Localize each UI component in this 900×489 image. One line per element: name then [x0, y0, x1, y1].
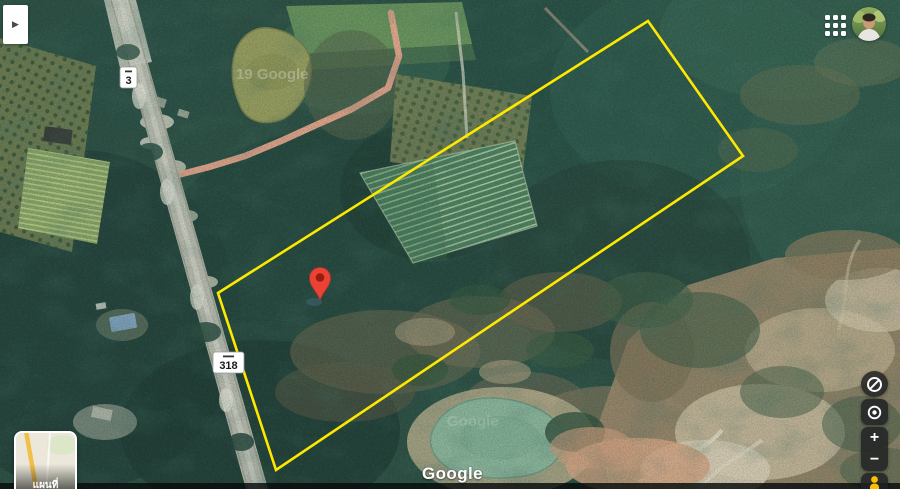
road-shield-3-label: 3 — [125, 75, 131, 87]
zoom-control: + − — [861, 427, 888, 471]
road-shield-318-label: 318 — [219, 360, 237, 372]
zoom-in-button[interactable]: + — [861, 427, 888, 449]
compass-icon — [861, 371, 888, 398]
map-type-toggle[interactable]: แผนที่ — [14, 431, 77, 489]
google-logo-watermark[interactable]: Google — [422, 464, 483, 484]
imagery-credit-watermark-faint: Google — [447, 413, 499, 430]
user-avatar-image — [852, 7, 886, 41]
sidebar-expand-button[interactable]: ▶ — [3, 5, 28, 44]
street-view-pegman-icon — [861, 473, 888, 489]
account-avatar-button[interactable] — [852, 7, 886, 41]
compass-button[interactable] — [861, 371, 888, 397]
google-maps-satellite-view: 3 318 19 Google Google Google ▶ — [0, 0, 900, 489]
my-location-button[interactable] — [861, 399, 888, 425]
apps-grid-icon — [825, 15, 830, 20]
pegman-button[interactable] — [861, 473, 888, 489]
my-location-icon — [861, 399, 888, 426]
map-type-label: แผนที่ — [16, 464, 75, 489]
imagery-credit-watermark: 19 Google — [236, 66, 309, 83]
chevron-right-icon: ▶ — [12, 19, 19, 30]
zoom-out-button[interactable]: − — [861, 449, 888, 471]
road-shield-3: 3 — [120, 67, 137, 88]
road-shield-318: 318 — [213, 352, 244, 373]
google-apps-button[interactable] — [825, 15, 846, 36]
